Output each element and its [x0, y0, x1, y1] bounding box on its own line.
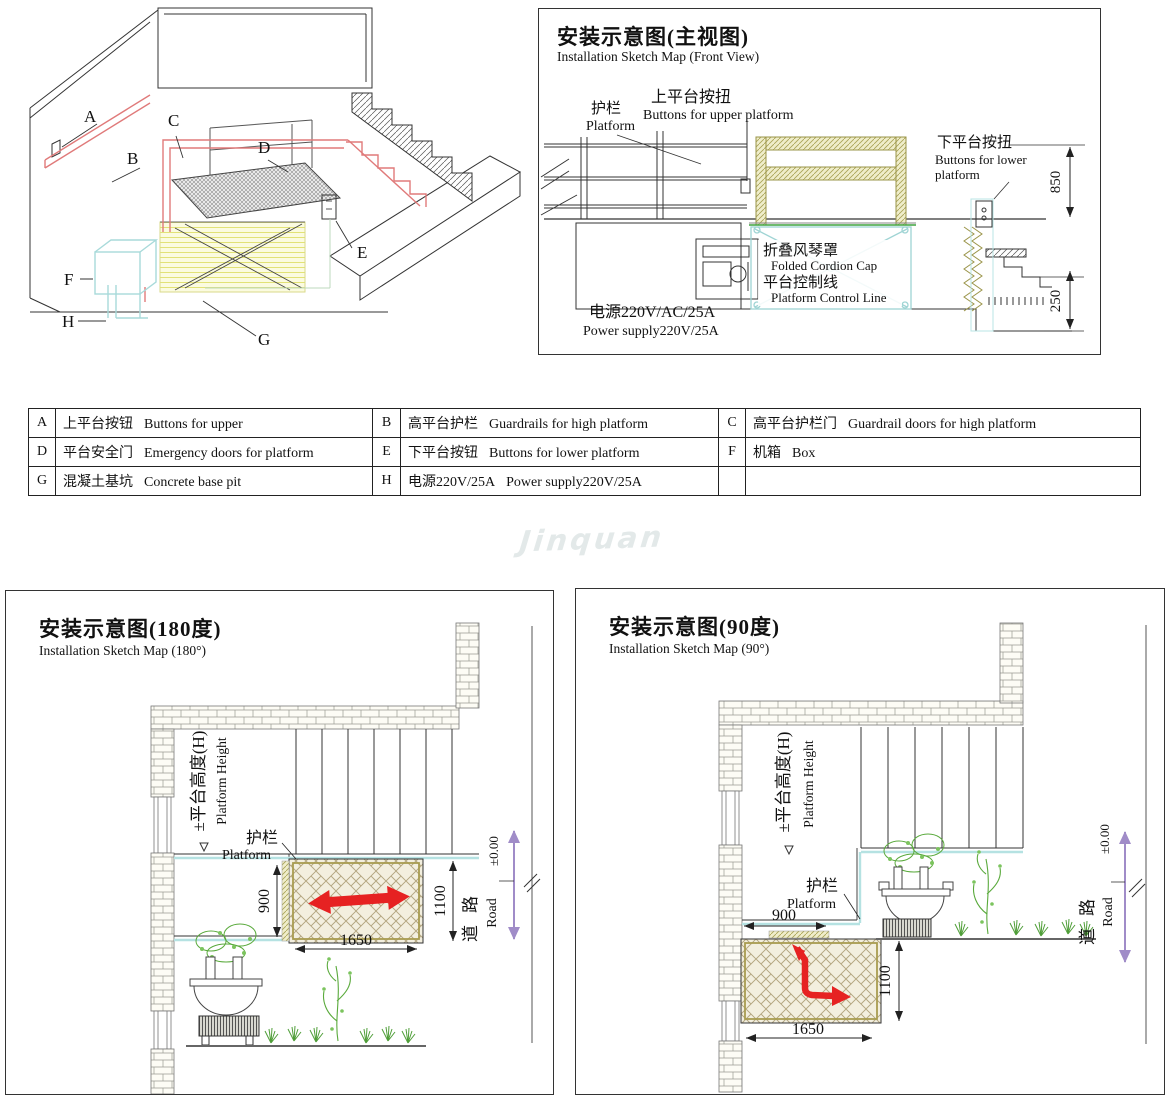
legend-en: Guardrail doors for high platform: [848, 417, 1036, 432]
legend-zh: 混凝土基坑: [63, 475, 133, 490]
road-label-zh: 道路: [1078, 887, 1097, 945]
platform-height-label-zh: ±平台高度(H): [774, 732, 793, 833]
legend-en: Buttons for upper: [144, 417, 243, 432]
dim-1100-value: 1100: [877, 965, 894, 996]
guardrail-label-en: Platform: [586, 119, 635, 134]
stairs: [352, 93, 472, 201]
platform-mesh-deck: [172, 163, 340, 218]
legend-zh: 机箱: [753, 446, 781, 461]
legend-zh: 高平台护栏: [408, 417, 478, 432]
legend-text: 电源220V/25APower supply220V/25A: [401, 467, 719, 496]
road-label-en: Road: [485, 898, 500, 928]
legend-key: A: [29, 409, 56, 438]
lower-buttons-label-en1: Buttons for lower: [935, 152, 1027, 167]
legend-zh: 上平台按钮: [63, 417, 133, 432]
bench: [199, 1016, 259, 1045]
upper-buttons-label-en: Buttons for upper platform: [643, 108, 794, 123]
legend-key: B: [373, 409, 401, 438]
control-line-label-en: Platform Control Line: [771, 290, 887, 305]
power-label-zh: 电源220V/AC/25A: [589, 303, 716, 321]
upper-buttons-label-zh: 上平台按扭: [651, 88, 731, 106]
plants: [265, 957, 415, 1043]
front-view-subtitle: Installation Sketch Map (Front View): [557, 49, 759, 65]
legend-key: C: [719, 409, 746, 438]
front-view-title: 安装示意图(主视图): [557, 21, 749, 51]
power-label-en: Power supply220V/25A: [583, 324, 720, 339]
cordion-label-zh: 折叠风琴罩: [763, 242, 838, 259]
legend-key: G: [29, 467, 56, 496]
machine-box: [95, 240, 156, 318]
legend-row: A 上平台按钮Buttons for upper B 高平台护栏Guardrai…: [29, 409, 1141, 438]
platform-height-label-en: Platform Height: [214, 737, 229, 825]
legend-zh: 高平台护栏门: [753, 417, 837, 432]
dim-850-value: 850: [1048, 171, 1064, 194]
legend-text: 机箱Box: [746, 438, 1141, 467]
legend-text: 上平台按钮Buttons for upper: [56, 409, 373, 438]
datum-triangle-icon: [785, 846, 793, 854]
iso-marker-b: B: [127, 149, 138, 168]
datum-triangle-icon: [200, 843, 208, 851]
dim-1100-value: 1100: [432, 885, 449, 916]
iso-marker-e: E: [357, 243, 367, 262]
lower-buttons-label-en2: platform: [935, 167, 980, 182]
legend-zh: 电源220V/25A: [408, 475, 495, 490]
road-level-value: ±0.00: [1097, 824, 1112, 854]
legend-en: Guardrails for high platform: [489, 417, 648, 432]
road-group: [1111, 625, 1146, 1044]
legend-key: F: [719, 438, 746, 467]
legend-text: 高平台护栏门Guardrail doors for high platform: [746, 409, 1141, 438]
legend-en: Buttons for lower platform: [489, 446, 639, 461]
legend-text: 混凝土基坑Concrete base pit: [56, 467, 373, 496]
map180-title: 安装示意图(180度): [39, 613, 222, 643]
dim-900-value: 900: [256, 889, 273, 913]
road-label-en: Road: [1101, 897, 1116, 927]
planter: [190, 924, 262, 1015]
iso-marker-a: A: [84, 107, 97, 126]
legend-table: A 上平台按钮Buttons for upper B 高平台护栏Guardrai…: [28, 408, 1141, 496]
isometric-overview-drawing: A B C D E F G H: [0, 0, 530, 370]
map90-drawing: ±平台高度(H) Platform Height 护栏 Platform 900…: [576, 589, 1164, 1094]
dim-1650-value: 1650: [340, 932, 372, 949]
legend-key: E: [373, 438, 401, 467]
dim-900-value: 900: [772, 907, 796, 924]
control-line-label-zh: 平台控制线: [763, 274, 838, 291]
accordion-cap: [964, 227, 982, 311]
concrete-pit: [160, 222, 305, 292]
lower-buttons-label-zh: 下平台按扭: [937, 134, 1012, 151]
iso-marker-f: F: [64, 270, 73, 289]
legend-text: 高平台护栏Guardrails for high platform: [401, 409, 719, 438]
road-group: [499, 626, 540, 1043]
map90-panel: ±平台高度(H) Platform Height 护栏 Platform 900…: [575, 588, 1165, 1095]
guardrail-label-en: Platform: [222, 848, 271, 863]
iso-marker-c: C: [168, 111, 179, 130]
legend-text: 平台安全门Emergency doors for platform: [56, 438, 373, 467]
iso-marker-g: G: [258, 330, 270, 349]
legend-zh: 下平台按钮: [408, 446, 478, 461]
bench: [883, 919, 931, 937]
cordion-label-en: Folded Cordion Cap: [771, 258, 877, 273]
map180-panel: ±平台高度(H) Platform Height 护栏 Platform 900…: [5, 590, 554, 1095]
lift-platform: [741, 939, 881, 1023]
legend-zh: 平台安全门: [63, 446, 133, 461]
legend-en: Power supply220V/25A: [506, 475, 642, 490]
map90-title: 安装示意图(90度): [609, 611, 780, 641]
guardrail-label-zh: 护栏: [591, 100, 621, 117]
legend-key: H: [373, 467, 401, 496]
legend-text: [746, 467, 1141, 496]
map180-subtitle: Installation Sketch Map (180°): [39, 643, 206, 659]
front-view-panel: 护栏 Platform 上平台按扭 Buttons for upper plat…: [538, 8, 1101, 355]
dim-1650-value: 1650: [792, 1021, 824, 1038]
high-platform-guardrail: [756, 137, 906, 225]
map90-subtitle: Installation Sketch Map (90°): [609, 641, 769, 657]
platform-height-label-en: Platform Height: [801, 740, 816, 828]
dim-250-value: 250: [1048, 290, 1064, 313]
upper-platform-edge: [769, 931, 829, 938]
iso-marker-h: H: [62, 312, 74, 331]
legend-key: [719, 467, 746, 496]
break-icon: [1129, 879, 1145, 897]
legend-en: Concrete base pit: [144, 475, 241, 490]
legend-en: Emergency doors for platform: [144, 446, 314, 461]
back-wall: [158, 8, 372, 88]
watermark: Jinquan: [518, 519, 666, 558]
iso-marker-d: D: [258, 138, 270, 157]
guardrail-label-zh: 护栏: [246, 829, 278, 847]
legend-en: Box: [792, 446, 815, 461]
legend-row: D 平台安全门Emergency doors for platform E 下平…: [29, 438, 1141, 467]
map180-drawing: ±平台高度(H) Platform Height 护栏 Platform 900…: [6, 591, 553, 1094]
road-level-value: ±0.00: [486, 836, 501, 866]
legend-row: G 混凝土基坑Concrete base pit H 电源220V/25APow…: [29, 467, 1141, 496]
platform-height-label-zh: ±平台高度(H): [189, 731, 208, 832]
plants: [955, 850, 1093, 936]
legend-key: D: [29, 438, 56, 467]
guardrail-label-zh: 护栏: [806, 877, 838, 895]
road-label-zh: 道路: [461, 884, 480, 942]
legend-text: 下平台按钮Buttons for lower platform: [401, 438, 719, 467]
